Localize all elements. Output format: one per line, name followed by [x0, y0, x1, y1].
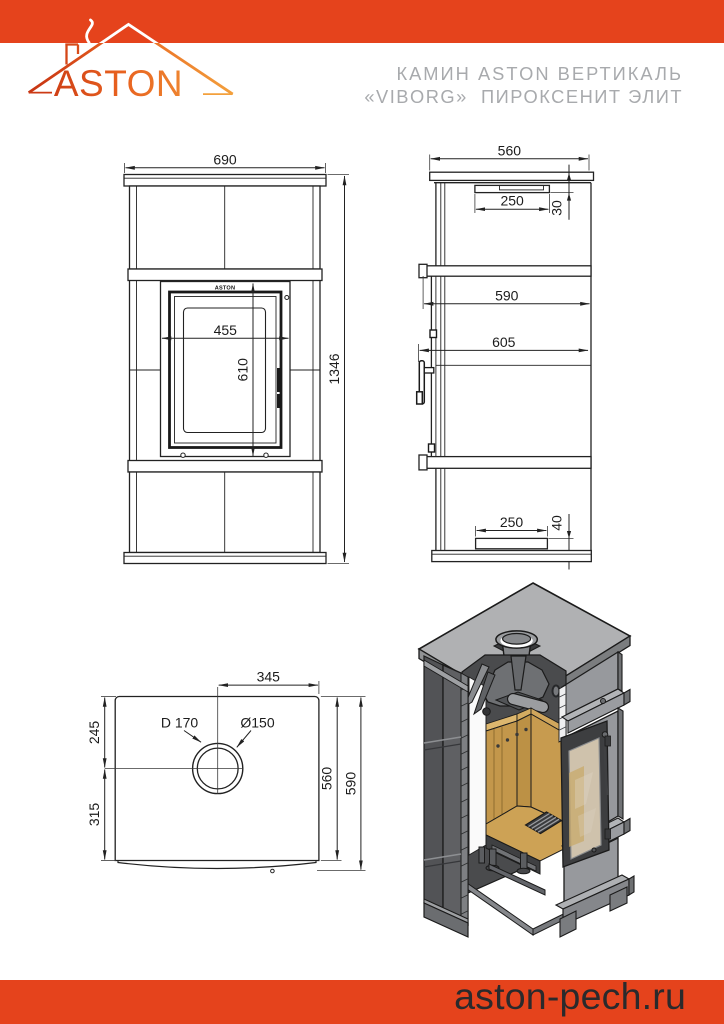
- svg-text:610: 610: [235, 358, 251, 382]
- svg-text:560: 560: [319, 767, 335, 791]
- svg-text:455: 455: [214, 322, 238, 338]
- svg-text:690: 690: [213, 151, 237, 167]
- svg-text:Ø150: Ø150: [240, 715, 274, 731]
- svg-text:315: 315: [86, 803, 102, 827]
- svg-text:345: 345: [257, 669, 281, 685]
- svg-text:605: 605: [492, 334, 516, 350]
- svg-text:1346: 1346: [326, 353, 342, 384]
- svg-text:590: 590: [495, 287, 519, 303]
- svg-text:D 170: D 170: [161, 715, 199, 731]
- svg-text:245: 245: [86, 721, 102, 745]
- svg-text:590: 590: [342, 772, 358, 796]
- svg-text:250: 250: [500, 193, 524, 209]
- svg-text:250: 250: [500, 514, 524, 530]
- svg-text:40: 40: [549, 515, 565, 531]
- svg-text:30: 30: [549, 200, 565, 216]
- svg-text:560: 560: [498, 142, 522, 158]
